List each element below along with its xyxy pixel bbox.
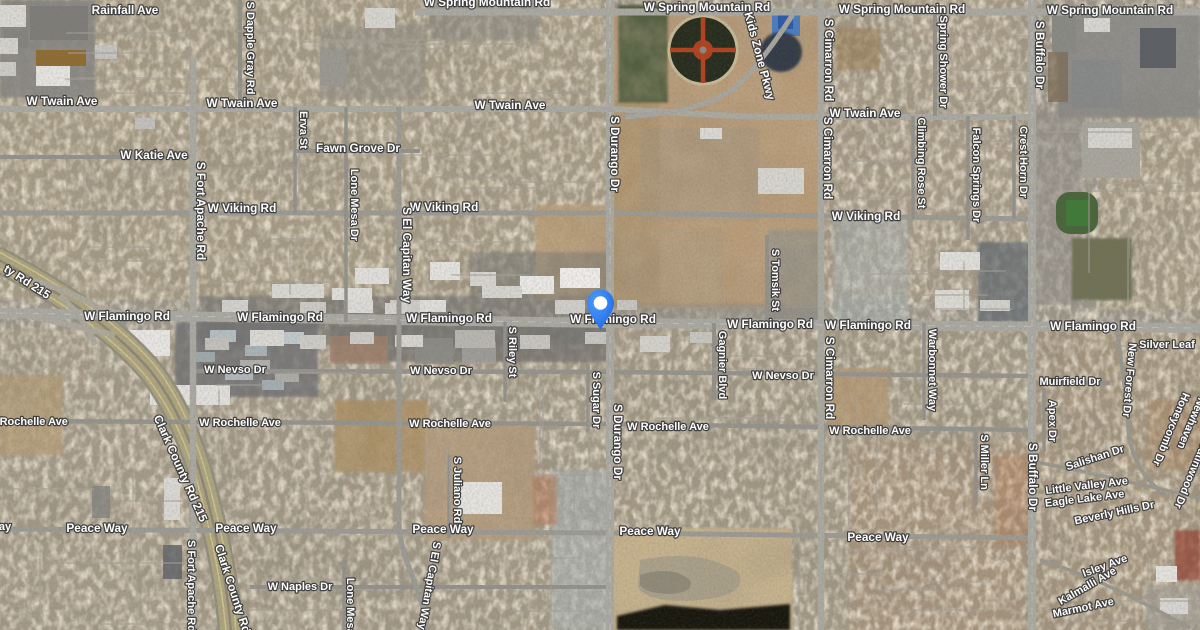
svg-text:W Twain Ave: W Twain Ave: [474, 98, 545, 112]
svg-text:Apex Dr: Apex Dr: [1046, 400, 1058, 443]
svg-text:Crest Horn Dr: Crest Horn Dr: [1017, 126, 1029, 199]
svg-text:W Twain Ave: W Twain Ave: [206, 96, 277, 110]
svg-text:S Buffalo Dr: S Buffalo Dr: [1026, 443, 1040, 512]
svg-text:W Viking Rd: W Viking Rd: [208, 201, 277, 215]
svg-text:S Juliano Rd: S Juliano Rd: [451, 457, 463, 524]
svg-text:Silver Leaf: Silver Leaf: [1139, 339, 1195, 351]
svg-text:Gagnier Blvd: Gagnier Blvd: [716, 331, 728, 399]
svg-text:Peace Way: Peace Way: [66, 521, 128, 535]
svg-text:W Flamingo Rd: W Flamingo Rd: [406, 311, 492, 325]
svg-text:W Spring Mountain Rd: W Spring Mountain Rd: [424, 0, 550, 9]
svg-text:Lone Mesa Dr: Lone Mesa Dr: [344, 578, 356, 630]
svg-text:Warbonnet Way: Warbonnet Way: [926, 329, 938, 412]
svg-text:Rainfall Ave: Rainfall Ave: [92, 3, 159, 17]
svg-text:W Twain Ave: W Twain Ave: [829, 106, 900, 120]
svg-text:W Spring Mountain Rd: W Spring Mountain Rd: [839, 2, 965, 16]
svg-text:W Flamingo Rd: W Flamingo Rd: [237, 310, 323, 324]
svg-text:Peace Way: Peace Way: [412, 522, 474, 536]
svg-text:Climbing Rose St: Climbing Rose St: [915, 117, 927, 208]
svg-text:Peace Way: Peace Way: [847, 530, 909, 544]
svg-text:Lone Mesa Dr: Lone Mesa Dr: [348, 169, 360, 242]
svg-text:S Fort Apache Rd: S Fort Apache Rd: [194, 162, 208, 261]
svg-text:S Cimarron Rd: S Cimarron Rd: [823, 337, 837, 420]
svg-text:S Buffalo Dr: S Buffalo Dr: [1033, 21, 1047, 90]
svg-text:Erva St: Erva St: [297, 111, 309, 149]
svg-text:W Rochelle Ave: W Rochelle Ave: [199, 417, 281, 429]
svg-text:W Flamingo Rd: W Flamingo Rd: [84, 309, 170, 323]
svg-text:S Cimarron Rd: S Cimarron Rd: [822, 19, 836, 102]
svg-text:Peace Way: Peace Way: [619, 524, 681, 538]
svg-text:S Fort Apache Rd: S Fort Apache Rd: [185, 540, 197, 630]
svg-text:W Rochelle Ave: W Rochelle Ave: [0, 416, 68, 428]
svg-text:W Twain Ave: W Twain Ave: [26, 94, 97, 108]
svg-text:Falcon Springs Dr: Falcon Springs Dr: [970, 128, 982, 223]
svg-text:W Katie Ave: W Katie Ave: [120, 148, 188, 162]
svg-text:S El Capitan Way: S El Capitan Way: [400, 207, 414, 303]
svg-text:Way: Way: [0, 521, 12, 533]
svg-text:S Riley St: S Riley St: [506, 327, 518, 378]
svg-text:S Cimarron Rd: S Cimarron Rd: [821, 117, 835, 200]
svg-text:S Dapple Gray Rd: S Dapple Gray Rd: [244, 2, 256, 95]
svg-text:W Nevso Dr: W Nevso Dr: [204, 364, 266, 376]
svg-text:W Flamingo Rd: W Flamingo Rd: [825, 318, 911, 332]
svg-text:S Tomsik St: S Tomsik St: [769, 249, 781, 311]
svg-text:W Spring Mountain Rd: W Spring Mountain Rd: [1047, 3, 1173, 17]
svg-text:Muirfield Dr: Muirfield Dr: [1039, 376, 1101, 388]
svg-text:W Viking Rd: W Viking Rd: [832, 209, 901, 223]
svg-text:W Flamingo Rd: W Flamingo Rd: [1050, 319, 1136, 333]
svg-text:W Naples Dr: W Naples Dr: [268, 581, 334, 593]
svg-text:S Durango Dr: S Durango Dr: [608, 116, 622, 192]
svg-text:Fawn Grove Dr: Fawn Grove Dr: [316, 141, 400, 155]
svg-text:W Rochelle Ave: W Rochelle Ave: [627, 421, 709, 433]
svg-text:S Sugar Dr: S Sugar Dr: [590, 372, 602, 430]
svg-text:W Flamingo Rd: W Flamingo Rd: [727, 317, 813, 331]
svg-text:W Nevso Dr: W Nevso Dr: [752, 370, 814, 382]
svg-text:W Rochelle Ave: W Rochelle Ave: [409, 418, 491, 430]
svg-text:S Miller Ln: S Miller Ln: [978, 434, 990, 490]
svg-text:W Nevso Dr: W Nevso Dr: [410, 365, 472, 377]
svg-text:W Rochelle Ave: W Rochelle Ave: [829, 425, 911, 437]
svg-text:S Durango Dr: S Durango Dr: [611, 404, 625, 480]
svg-text:Peace Way: Peace Way: [215, 521, 277, 535]
svg-text:Spring Shower Dr: Spring Shower Dr: [937, 16, 949, 110]
svg-text:W Viking Rd: W Viking Rd: [410, 200, 479, 214]
svg-text:W Flamingo Rd: W Flamingo Rd: [570, 312, 656, 326]
